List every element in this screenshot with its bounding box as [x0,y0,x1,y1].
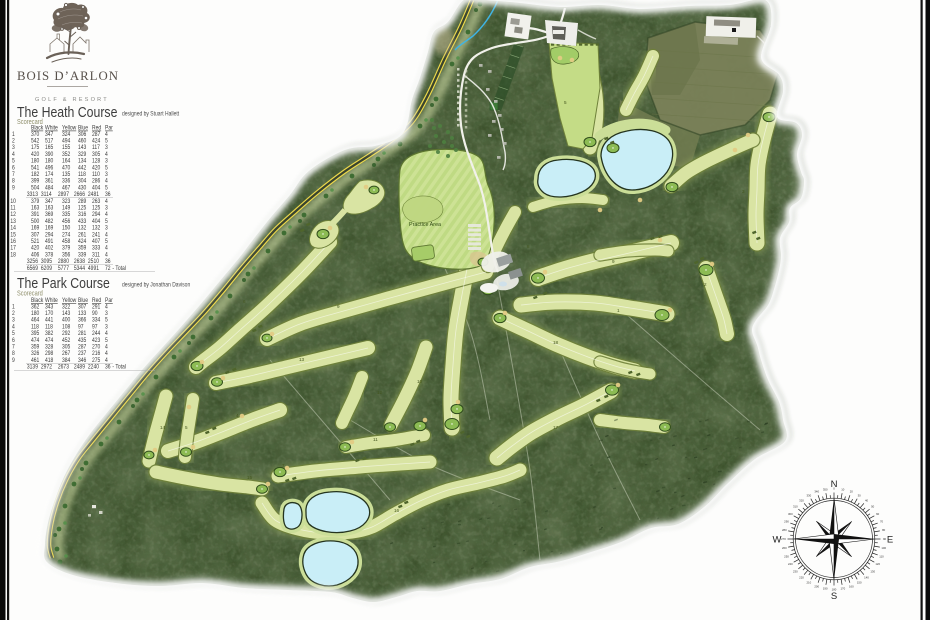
svg-text:designed by Stuart Hallett: designed by Stuart Hallett [122,111,180,118]
svg-text:BOIS D’ARLON: BOIS D’ARLON [17,69,119,83]
svg-text:130: 130 [870,570,875,574]
svg-text:240: 240 [788,562,793,566]
svg-text:E: E [887,535,893,546]
svg-text:14: 14 [160,425,166,430]
svg-text:8: 8 [527,244,530,249]
svg-text:11: 11 [373,437,378,442]
svg-text:340: 340 [814,490,819,494]
svg-text:17: 17 [553,425,559,430]
svg-text:260: 260 [782,546,787,550]
svg-text:40: 40 [865,498,869,502]
svg-text:250: 250 [784,554,789,558]
svg-text:1: 1 [617,308,620,313]
svg-text:W: W [773,535,782,546]
svg-text:270: 270 [781,537,786,541]
svg-text:230: 230 [793,570,798,574]
svg-text:10: 10 [841,487,845,491]
svg-text:10: 10 [417,379,423,384]
svg-text:13: 13 [299,357,305,362]
svg-text:310: 310 [793,505,798,509]
svg-text:210: 210 [806,581,811,585]
svg-text:2: 2 [704,282,707,287]
svg-text:15: 15 [247,475,253,480]
svg-text:5: 5 [185,425,188,430]
svg-text:18: 18 [553,340,559,345]
svg-text:9: 9 [337,304,340,309]
svg-text:3: 3 [742,189,745,194]
svg-text:6: 6 [243,299,246,304]
svg-text:280: 280 [782,528,787,532]
svg-text:Practice Area: Practice Area [409,222,441,228]
svg-text:N: N [831,479,838,490]
svg-text:330: 330 [806,493,811,497]
svg-text:4: 4 [236,413,239,418]
svg-text:12: 12 [377,390,383,395]
svg-text:16: 16 [394,508,400,513]
svg-text:170: 170 [840,587,845,591]
svg-text:350: 350 [823,487,828,491]
svg-text:60: 60 [876,512,880,516]
svg-text:50: 50 [871,505,875,509]
svg-text:The Park Course: The Park Course [17,275,110,291]
svg-text:9: 9 [612,259,615,264]
svg-text:290: 290 [784,520,789,524]
svg-text:30: 30 [858,493,862,497]
svg-text:5: 5 [564,100,567,105]
svg-text:GOLF & RESORT: GOLF & RESORT [35,97,109,103]
svg-text:140: 140 [864,576,869,580]
svg-text:120: 120 [875,562,880,566]
svg-text:S: S [831,591,837,602]
svg-text:320: 320 [799,498,804,502]
svg-text:160: 160 [849,585,854,589]
svg-text:190: 190 [823,587,828,591]
svg-text:220: 220 [799,576,804,580]
svg-text:110: 110 [879,554,884,558]
svg-text:designed by Jonathan Davison: designed by Jonathan Davison [122,282,190,289]
svg-text:300: 300 [788,512,793,516]
svg-text:7: 7 [282,463,285,468]
svg-text:20: 20 [850,490,854,494]
svg-text:100: 100 [881,546,886,550]
svg-text:Scorecard: Scorecard [17,290,43,298]
svg-text:70: 70 [880,520,884,524]
svg-text:200: 200 [814,585,819,589]
svg-text:80: 80 [882,528,886,532]
svg-text:150: 150 [857,581,862,585]
